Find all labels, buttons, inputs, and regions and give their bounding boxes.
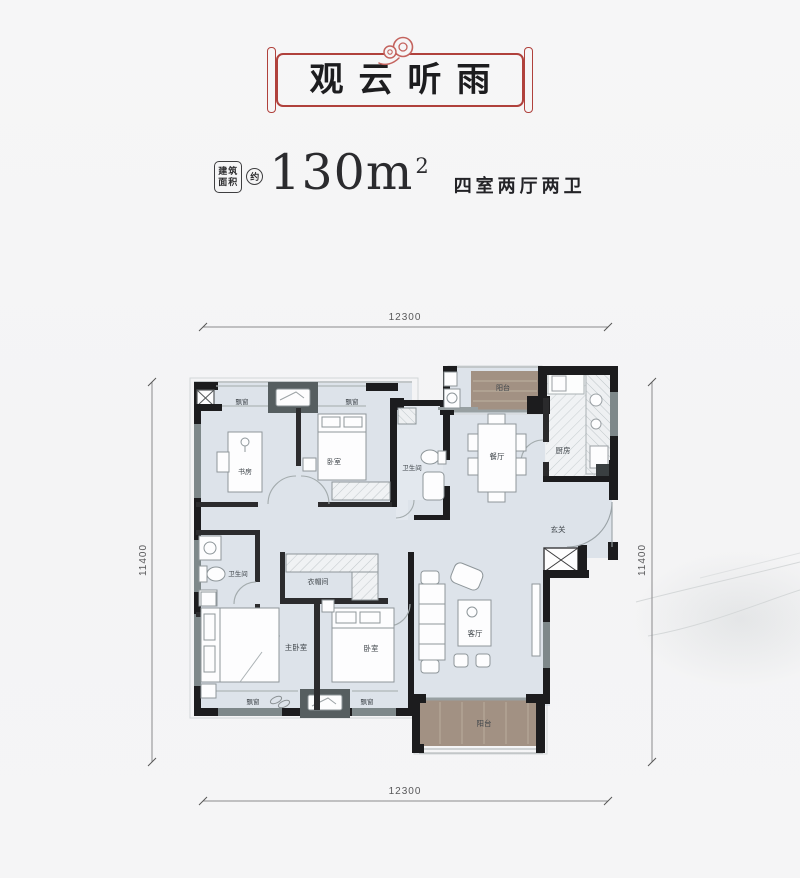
label-bathroom-top: 卫生间 (402, 463, 422, 472)
label-bay-window-3: 飘窗 (247, 697, 260, 706)
page: { "header": { "title": "观云听雨", "ornament… (0, 0, 800, 878)
dim-left-value: 11400 (138, 544, 149, 576)
label-bathroom-mid: 卫生间 (228, 569, 248, 578)
label-dining-room: 餐厅 (490, 452, 505, 461)
dim-right-value: 11400 (637, 544, 648, 576)
label-master-bedroom: 主卧室 (285, 642, 308, 652)
dimension-right: 11400 (637, 378, 656, 766)
label-bedroom-top: 卧室 (327, 457, 341, 466)
kitchen-area (546, 370, 612, 478)
floor-plan: 12300 12300 11400 11400 (0, 0, 800, 878)
label-balcony-bottom: 阳台 (477, 718, 492, 728)
label-entrance: 玄关 (551, 524, 566, 534)
dim-top-value: 12300 (389, 312, 422, 323)
dimension-top: 12300 (199, 312, 612, 331)
master-bed (201, 592, 279, 698)
dimension-bottom: 12300 (199, 786, 612, 805)
dimension-left: 11400 (138, 378, 156, 766)
bedroom-bottom-bed (322, 600, 394, 682)
label-cloakroom: 衣帽间 (308, 577, 329, 586)
dim-bottom-value: 12300 (389, 786, 422, 797)
label-study: 书房 (238, 467, 252, 476)
label-bay-window-1: 飘窗 (236, 397, 249, 406)
label-bedroom-bottom: 卧室 (364, 643, 379, 653)
label-kitchen: 厨房 (556, 445, 571, 455)
ink-wash-strokes (636, 553, 800, 636)
label-living-room: 客厅 (468, 628, 483, 638)
label-bay-window-4: 飘窗 (361, 697, 374, 706)
label-bay-window-2: 飘窗 (346, 397, 359, 406)
label-balcony-top: 阳台 (496, 383, 510, 392)
